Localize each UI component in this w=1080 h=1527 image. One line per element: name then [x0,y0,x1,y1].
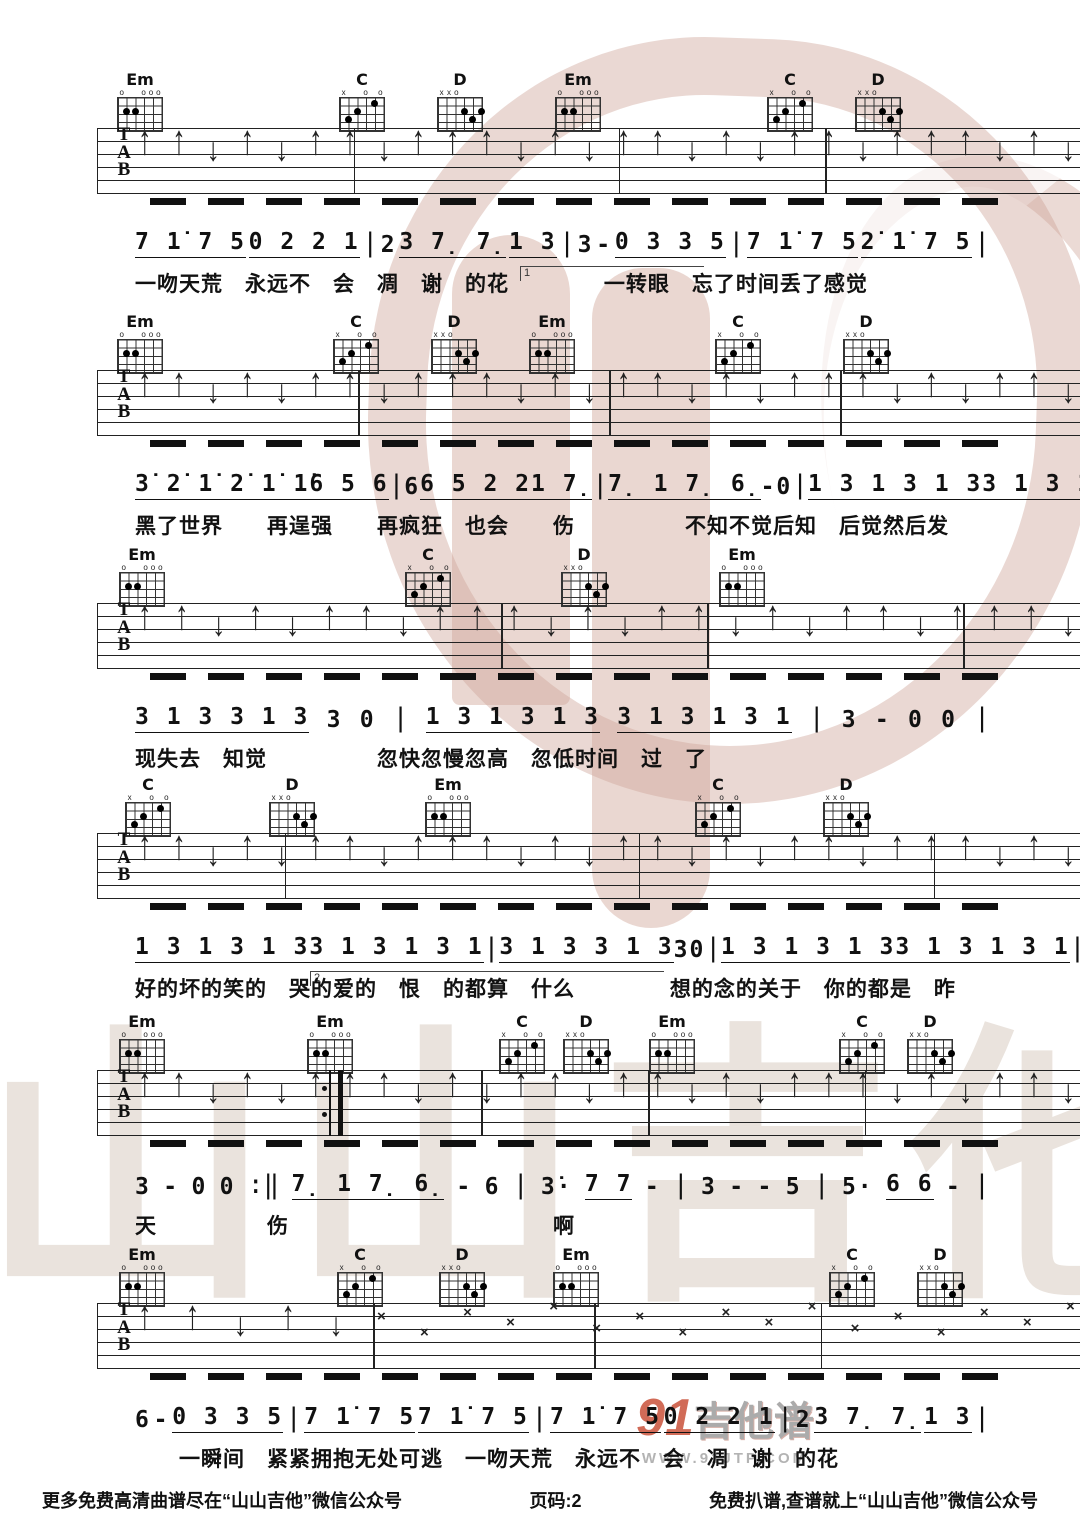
string-marker [454,331,461,339]
string-marker: o [308,1031,315,1039]
string-marker: o [742,564,749,572]
chord-string-markers: oooo [650,1031,694,1039]
string-marker: x [439,331,446,339]
strum-up-arrow: ↑ [719,825,733,867]
string-marker [345,1264,352,1272]
number-barline: | [559,228,575,258]
muted-note-x: × [463,1305,472,1320]
finger-dot [941,1283,948,1290]
string-marker [127,1264,134,1272]
strum-up-arrow: ↑ [241,120,255,162]
finger-dot [854,1050,861,1057]
string-marker [125,331,132,339]
jianpu-notes: 3 7̣ 7̣ [399,229,506,258]
string-marker: o [455,1264,462,1272]
finger-dot [514,1050,521,1057]
strum-down-arrow: ↓ [583,376,597,408]
chord-string-markers: xoo [340,89,384,97]
chord-string-markers: xoo [406,564,450,572]
string-marker: o [552,331,559,339]
string-marker [462,1264,469,1272]
strum-up-arrow: ↑ [480,362,494,404]
chord-name: C [334,70,390,89]
number-barline: | [792,470,808,500]
strum-down-arrow: ↓ [544,609,558,641]
muted-note-x: × [765,1315,774,1330]
strum-up-arrow: ↑ [138,595,152,637]
string-marker [601,1031,608,1039]
strum-up-arrow: ↑ [249,595,263,637]
string-marker: x [447,1264,454,1272]
string-marker: x [918,1264,925,1272]
finger-dot [125,1050,132,1057]
string-marker: o [149,564,156,572]
string-marker [599,564,606,572]
string-marker: o [448,794,455,802]
string-marker: o [330,1031,337,1039]
string-marker: x [438,89,445,97]
lyrics-line: 现失去 知觉 忽快忽慢忽高 忽低时间 过 了 [135,743,1035,773]
jianpu-notes: 3 1 3 1 3 1 [895,934,1069,963]
jianpu-notes: - [757,1174,773,1200]
chord-name: Em [302,1012,358,1031]
strum-up-arrow: ↑ [241,1062,255,1104]
jianpu-notes: 0 3 3 5 [615,229,726,258]
finger-dot [125,1283,132,1290]
jianpu-notes: - [729,1174,745,1200]
string-marker: x [562,564,569,572]
string-marker [477,1264,484,1272]
strum-up-arrow: ↑ [925,120,939,162]
string-marker [133,89,140,97]
string-marker [797,89,804,97]
strum-up-arrow: ↑ [360,595,374,637]
string-marker [727,564,734,572]
strum-up-arrow: ↑ [309,120,323,162]
strum-up-arrow: ↑ [343,825,357,867]
chord-string-markers: xxo [918,1264,962,1272]
muted-note-x: × [420,1325,429,1340]
finger-dot [931,1050,938,1057]
finger-dot [867,350,874,357]
strum-up-arrow: ↑ [993,362,1007,404]
muted-note-x: × [678,1325,687,1340]
string-marker [367,1264,374,1272]
string-marker: o [463,794,470,802]
string-marker: o [118,89,125,97]
string-marker: o [157,1031,164,1039]
muted-note-x: × [894,1309,903,1324]
string-marker: o [362,89,369,97]
finger-dot [568,1283,575,1290]
strum-up-arrow: ↑ [548,825,562,867]
chord-name: Em [112,70,168,89]
strum-down-arrow: ↓ [754,134,768,166]
strum-up-arrow: ↑ [617,120,631,162]
strum-up-arrow: ↑ [241,825,255,867]
tab-clef-label: TAB [116,126,132,179]
string-marker: o [155,89,162,97]
string-marker [665,1031,672,1039]
muted-note-x: × [851,1321,860,1336]
muted-note-x: × [721,1305,730,1320]
chord-string-markers: oooo [308,1031,352,1039]
string-marker: x [338,1264,345,1272]
finger-dot [461,108,468,115]
jianpu-number-line: 3-00:‖7̣ 1 7̣ 6̣-6|3̇·7 7-|3--5|5·6 6-| [135,1170,990,1200]
rhythm-beams [150,198,1010,205]
strum-up-arrow: ↑ [323,595,337,637]
string-marker: x [851,331,858,339]
string-marker: x [500,1031,507,1039]
strum-up-arrow: ↑ [719,362,733,404]
string-marker: x [856,89,863,97]
strum-up-arrow: ↑ [925,362,939,404]
string-marker: o [371,331,378,339]
muted-note-x: × [808,1299,817,1314]
strum-up-arrow: ↑ [877,595,891,637]
finger-dot [864,813,871,820]
finger-dot [354,108,361,115]
jianpu-notes: - [596,232,612,258]
chord-string-markers: xoo [830,1264,874,1272]
string-marker [441,794,448,802]
muted-note-x: × [506,1315,515,1330]
tab-clef-label: TAB [116,1068,132,1121]
number-barline: | [532,1403,548,1433]
finger-dot [472,350,479,357]
chord-name: Em [112,312,168,331]
string-marker: o [356,331,363,339]
string-marker: o [453,89,460,97]
strum-down-arrow: ↓ [1061,839,1075,871]
strum-down-arrow: ↓ [377,134,391,166]
strum-arrows: ↑↑↓↑↓↑↑↓↑↑↑↓↑↓↑↑↓↑↓↑↑↓↑↑↑↓↑↓ [138,825,1075,895]
finger-dot [293,813,300,820]
string-marker [133,331,140,339]
strum-down-arrow: ↓ [514,376,528,408]
string-marker: o [163,794,170,802]
jianpu-notes: 6 5 2 2 [420,471,531,500]
string-marker [127,564,134,572]
rhythm-beams [150,1373,1010,1380]
jianpu-notes: 2̇ 1̇ 7 5 [861,229,972,258]
string-marker [873,331,880,339]
strum-down-arrow: ↓ [1061,609,1075,641]
tab-staff: TAB↑↑↓↑↓↑↑↓↑↑↑↓↑↓↑↑↓↑↓↑↑↓↑↑↑↓↑↓ [97,833,1080,899]
number-barline: | [592,470,608,500]
string-marker [353,1264,360,1272]
chord-name: C [834,1012,890,1031]
string-marker: o [337,1031,344,1039]
string-marker [859,1264,866,1272]
strum-arrows: ↑↑↓↑↓↑↑↓↑↑↑↓↑↓↑↑↓↑↓↑↑↓↑↑↑↓ [138,595,1075,665]
string-marker: o [859,331,866,339]
chord-name: C [400,545,456,564]
chord-string-markers: xxo [438,89,482,97]
strum-down-arrow: ↓ [275,134,289,166]
string-marker [461,331,468,339]
chord-string-markers: oooo [120,1264,164,1272]
jianpu-notes: 3 1 3 1 3 1 [982,471,1080,500]
string-marker [731,331,738,339]
jianpu-notes: 6 6 [886,1171,934,1200]
strum-up-arrow: ↑ [651,825,665,867]
strum-up-arrow: ↑ [651,1062,665,1104]
string-marker [355,89,362,97]
lyrics-line: 一瞬间 紧紧拥抱无处可逃 一吻天荒 永远不 会 凋 谢 的花 [135,1443,1035,1473]
string-marker: o [790,89,797,97]
finger-dot [734,583,741,590]
string-marker: o [867,1264,874,1272]
strum-up-arrow: ↑ [309,1062,323,1104]
strum-down-arrow: ↓ [729,609,743,641]
jianpu-notes: 1 3 [924,1404,972,1433]
strum-down-arrow: ↓ [212,609,226,641]
strum-down-arrow: ↓ [618,609,632,641]
finger-dot [431,813,438,820]
strum-down-arrow: ↓ [856,839,870,871]
strum-down-arrow: ↓ [377,376,391,408]
string-marker [292,794,299,802]
string-marker: x [445,89,452,97]
string-marker [460,89,467,97]
strum-up-arrow: ↑ [241,362,255,404]
string-marker: o [530,331,537,339]
string-marker [537,331,544,339]
strum-up-arrow: ↑ [651,120,665,162]
muted-note-x: × [377,1309,386,1324]
string-marker: o [157,1264,164,1272]
chord-string-markers: xoo [500,1031,544,1039]
string-marker: o [923,1031,930,1039]
finger-dot [420,583,427,590]
tab-system: EmooooCxooDxxoEmooooCxooDxxoTAB↑↑↓↑↓××××… [0,1245,1080,1481]
string-marker [435,564,442,572]
number-barline: | [974,1170,990,1200]
string-marker [853,794,860,802]
strum-down-arrow: ↓ [685,839,699,871]
strum-up-arrow: ↑ [617,362,631,404]
jianpu-notes: 1 3 1 3 1 3 [135,934,309,963]
strum-up-arrow: ↑ [788,362,802,404]
strum-up-arrow: ↑ [172,120,186,162]
string-marker [847,1031,854,1039]
strum-down-arrow: ↓ [583,1076,597,1108]
string-marker: x [406,564,413,572]
strum-up-arrow: ↑ [446,1062,460,1104]
strum-down-arrow: ↓ [275,839,289,871]
strum-down-arrow: ↓ [206,134,220,166]
jianpu-notes: - [875,707,891,733]
string-marker: o [567,331,574,339]
string-marker [885,89,892,97]
string-marker: o [738,331,745,339]
string-marker: x [716,331,723,339]
strum-up-arrow: ↑ [890,120,904,162]
finger-dot [879,108,886,115]
strum-up-arrow: ↑ [446,825,460,867]
strum-down-arrow: ↓ [206,839,220,871]
finger-dot [348,350,355,357]
strum-up-arrow: ↑ [1027,362,1041,404]
string-marker [507,1031,514,1039]
string-marker: x [696,794,703,802]
lyrics-line: 一吻天荒 永远不 会 凋 谢 的花 一转眼 忘了时间丢了感觉 [135,268,1035,298]
string-marker: o [871,89,878,97]
strum-up-arrow: ↑ [343,1062,357,1104]
strum-down-arrow: ↓ [993,839,1007,871]
finger-dot [861,1275,868,1282]
chord-name: Em [114,1012,170,1031]
string-marker [930,1031,937,1039]
jianpu-number-line: 1 3 1 3 1 33 1 3 1 3 1|3 1 3 3 1 330|1 3… [135,933,990,963]
number-barline: | [974,703,990,733]
strum-up-arrow: ↑ [412,120,426,162]
strum-up-arrow: ↑ [692,595,706,637]
strum-up-arrow: ↑ [655,595,669,637]
strum-up-arrow: ↑ [412,825,426,867]
string-marker: o [157,564,164,572]
jianpu-notes: 3 [701,1174,717,1200]
string-marker: o [749,564,756,572]
string-marker [515,1031,522,1039]
string-marker: o [578,89,585,97]
string-marker [725,794,732,802]
chord-name: D [558,1012,614,1031]
strum-up-arrow: ↑ [617,1062,631,1104]
strum-down-arrow: ↓ [685,376,699,408]
number-barline: | [673,1170,689,1200]
rhythm-beams [150,440,1010,447]
string-marker [315,1031,322,1039]
string-marker [893,89,900,97]
chord-string-markers: xoo [716,331,760,339]
jianpu-notes: 0 [360,707,376,733]
string-marker: o [591,1264,598,1272]
string-marker [433,794,440,802]
page-number: 页码:2 [529,1487,581,1513]
number-barline: :‖ [248,1170,279,1200]
strum-down-arrow: ↓ [583,134,597,166]
finger-dot [371,100,378,107]
chord-string-markers: xxo [562,564,606,572]
finger-dot [604,1050,611,1057]
chord-string-markers: xoo [696,794,740,802]
jianpu-notes: - [946,1174,962,1200]
string-marker [837,1264,844,1272]
muted-note-x: × [1023,1315,1032,1330]
strum-down-arrow: ↓ [890,1076,904,1108]
jianpu-notes: 3 [842,707,858,733]
string-marker [723,331,730,339]
string-marker: o [447,331,454,339]
strum-down-arrow: ↓ [206,376,220,408]
strum-up-arrow: ↑ [951,595,965,637]
strum-up-arrow: ↑ [470,595,484,637]
rhythm-beams [150,903,1010,910]
finger-dot [535,350,542,357]
finger-dot [948,1050,955,1057]
finger-dot [844,1283,851,1290]
strum-up-arrow: ↑ [138,1062,152,1104]
strum-up-arrow: ↑ [434,595,448,637]
string-marker: x [824,794,831,802]
chord-name: Em [714,545,770,564]
string-marker [571,89,578,97]
jianpu-number-line: 3 1 3 3 1 330|1 3 1 3 1 33 1 3 1 3 1|3-0… [135,703,990,733]
tab-clef-label: TAB [116,601,132,654]
strum-up-arrow: ↑ [988,595,1002,637]
jianpu-notes: 3 1 3 3 1 3 [499,934,673,963]
chord-string-markers: xoo [840,1031,884,1039]
string-marker: o [443,564,450,572]
string-marker: o [583,1264,590,1272]
number-barline: | [362,228,378,258]
jianpu-notes: 2 [796,1407,812,1433]
string-marker: o [120,564,127,572]
strum-up-arrow: ↑ [1025,595,1039,637]
number-barline: | [389,470,405,500]
string-marker [135,564,142,572]
string-marker: x [908,1031,915,1039]
chord-string-markers: oooo [554,1264,598,1272]
strum-down-arrow: ↓ [329,1309,343,1341]
chord-name: D [434,1245,490,1264]
strum-up-arrow: ↑ [548,120,562,162]
strum-up-arrow: ↑ [581,595,595,637]
string-marker: o [672,1031,679,1039]
chord-string-markers: oooo [118,331,162,339]
strum-up-arrow: ↑ [175,595,189,637]
string-marker: o [377,89,384,97]
jianpu-notes: 5· [842,1174,874,1200]
strum-up-arrow: ↑ [507,595,521,637]
string-marker [945,1031,952,1039]
chord-string-markers: xxo [908,1031,952,1039]
jianpu-notes: 0 [220,1174,236,1200]
strum-down-arrow: ↓ [890,376,904,408]
muted-note-x: × [592,1321,601,1336]
finger-dot [664,1050,671,1057]
string-marker: o [537,1031,544,1039]
strum-up-arrow: ↑ [651,362,665,404]
muted-note-x: × [980,1305,989,1320]
string-marker: o [285,794,292,802]
string-marker [866,331,873,339]
finger-dot [710,813,717,820]
strum-arrows: ↑↑↓↑↓××××××××××××××××× [138,1295,1075,1365]
chord-name: D [432,70,488,89]
strum-up-arrow: ↑ [548,362,562,404]
finger-dot [478,108,485,115]
chord-name: C [494,1012,550,1031]
jianpu-notes: 3̇· [541,1174,573,1200]
tab-clef-label: TAB [116,831,132,884]
strum-down-arrow: ↓ [480,1076,494,1108]
strum-up-arrow: ↑ [480,120,494,162]
jianpu-notes: 1 3 [509,229,557,258]
finger-dot [655,1050,662,1057]
string-marker [561,1264,568,1272]
jianpu-notes: 5 [786,1174,802,1200]
string-marker: x [571,1031,578,1039]
string-marker: o [753,331,760,339]
jianpu-notes: 0 2 2 1 [249,229,360,258]
string-marker [937,1031,944,1039]
finger-dot [871,1042,878,1049]
strum-up-arrow: ↑ [343,120,357,162]
